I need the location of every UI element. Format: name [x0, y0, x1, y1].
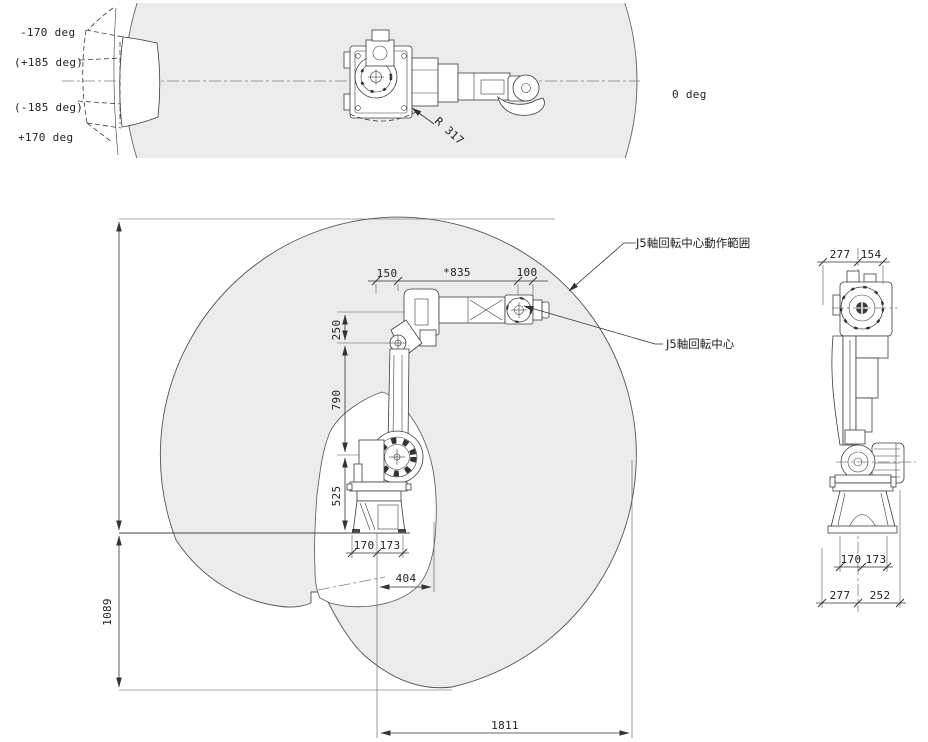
angle-label-neg170: -170 deg: [20, 26, 75, 39]
angle-label-pos170: +170 deg: [18, 131, 73, 144]
dim-rear-277-top: 277: [830, 248, 851, 261]
robot-rear-view: [828, 271, 916, 533]
j2-motor: [359, 440, 384, 482]
dim-base-173: 173: [380, 539, 401, 552]
rotation-limit-wedge-dashed: [78, 8, 123, 142]
dim-rear-154: 154: [861, 248, 882, 261]
leader-j5-center-label: J5軸回転中心: [665, 337, 735, 351]
dim-rear-277-bottom: 277: [830, 589, 851, 602]
robot-envelope-drawing: R 317 -170 deg (+185 deg) (-185 deg) +17…: [0, 0, 928, 742]
leader-j5-range-label: J5軸回転中心動作範囲: [635, 236, 750, 250]
angle-label-pos185: (+185 deg): [14, 56, 83, 69]
leader-j5-range: J5軸回転中心動作範囲: [569, 236, 750, 291]
dim-250: 250: [330, 320, 343, 341]
dim-525: 525: [330, 486, 343, 507]
upper-arm-link: [388, 349, 409, 443]
rear-view: 277 154 170 173 277 252: [816, 248, 916, 612]
dim-790: 790: [330, 390, 343, 411]
dim-rear-252: 252: [870, 589, 891, 602]
dim-404: 404: [396, 572, 417, 585]
angle-label-zero: 0 deg: [672, 88, 707, 101]
base-pedestal: [347, 482, 411, 533]
angle-label-neg185: (-185 deg): [14, 101, 83, 114]
rear-base: [828, 475, 897, 533]
dim-1811: 1811: [491, 719, 519, 732]
drawing-svg: R 317 -170 deg (+185 deg) (-185 deg) +17…: [0, 0, 928, 742]
side-view: 150 *835 100 250 790 525 170 173 404 108…: [101, 217, 750, 738]
dim-100: 100: [517, 266, 538, 279]
dim-150: 150: [377, 267, 398, 280]
dim-835: *835: [443, 266, 471, 279]
dim-rear-170: 170: [841, 553, 862, 566]
dim-base-170: 170: [354, 539, 375, 552]
dim-1089: 1089: [101, 598, 114, 626]
dim-rear-173: 173: [866, 553, 887, 566]
